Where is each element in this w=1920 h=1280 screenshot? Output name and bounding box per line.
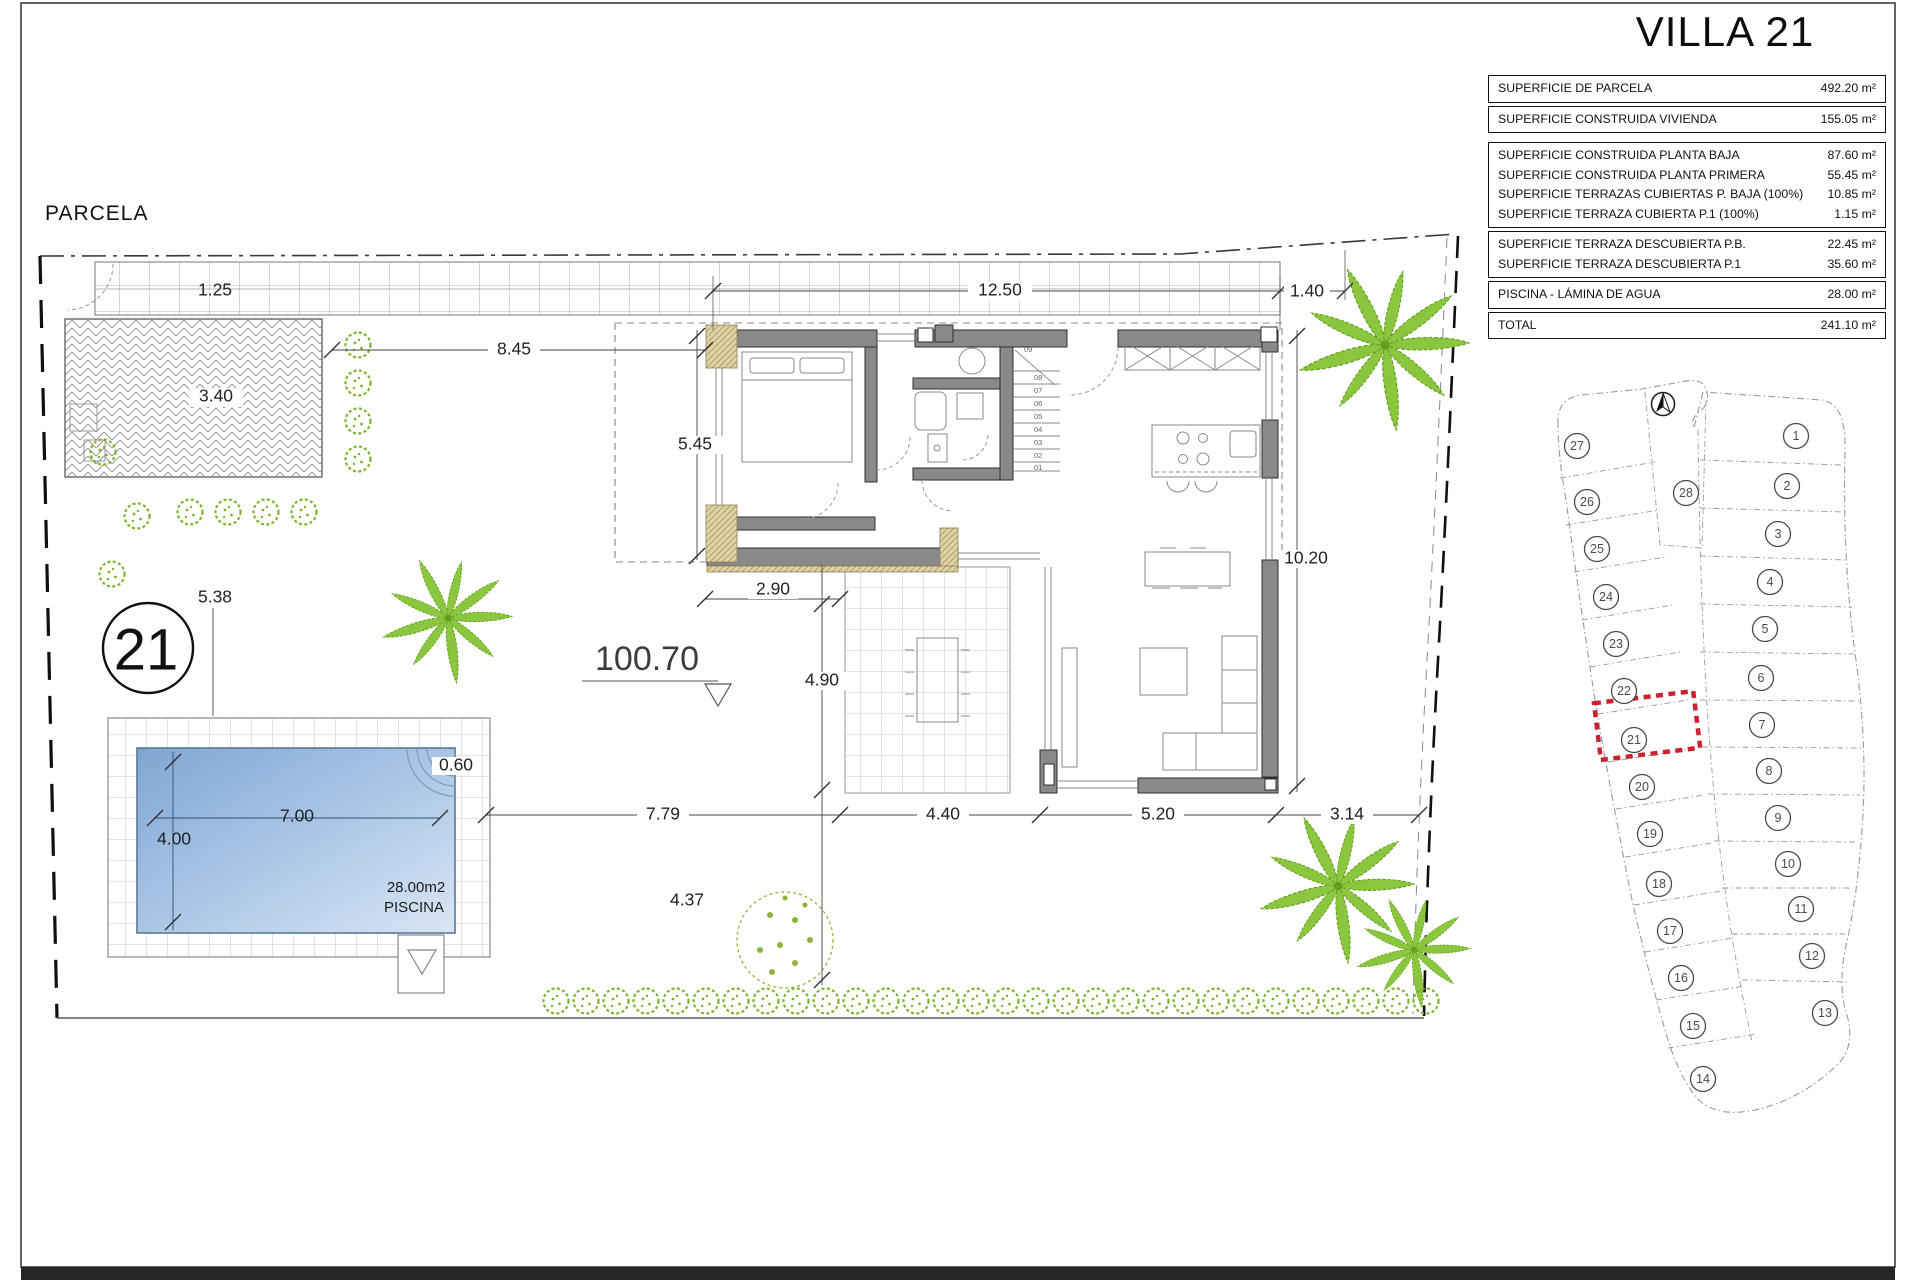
table-row: SUPERFICIE TERRAZAS CUBIERTAS P. BAJA (1…	[1489, 185, 1885, 205]
area-table-group: PISCINA - LÁMINA DE AGUA 28.00 m²	[1488, 281, 1886, 309]
area-table-group: TOTAL 241.10 m²	[1488, 312, 1886, 340]
svg-text:10: 10	[1781, 857, 1795, 871]
stair-label: 07	[1034, 386, 1042, 395]
site-location-map: 1 2 3 4 5 6 7 8 9 10 11 12 13 14 15 16 1…	[1558, 380, 1864, 1112]
area-table-group: SUPERFICIE CONSTRUIDA VIVIENDA 155.05 m²	[1488, 106, 1886, 134]
svg-text:3: 3	[1775, 527, 1782, 541]
dining-table	[1145, 548, 1230, 588]
svg-text:11: 11	[1795, 902, 1808, 916]
round-shrub	[737, 892, 833, 988]
dim-pool-length: 7.00	[280, 806, 314, 826]
stair-label: 06	[1034, 399, 1042, 408]
door-arcs	[802, 347, 1118, 519]
row-value: 87.60 m²	[1819, 148, 1876, 164]
svg-text:8: 8	[1766, 764, 1773, 778]
area-table-group: SUPERFICIE TERRAZA DESCUBIERTA P.B. 22.4…	[1488, 231, 1886, 278]
svg-text:24: 24	[1599, 590, 1613, 604]
svg-text:13: 13	[1818, 1006, 1832, 1020]
svg-text:19: 19	[1643, 827, 1657, 841]
row-label: PISCINA - LÁMINA DE AGUA	[1498, 287, 1661, 303]
svg-text:9: 9	[1775, 811, 1782, 825]
sofa	[1163, 636, 1257, 770]
row-label: SUPERFICIE DE PARCELA	[1498, 81, 1652, 97]
svg-text:25: 25	[1590, 542, 1604, 556]
svg-text:28: 28	[1679, 486, 1693, 500]
svg-text:26: 26	[1580, 495, 1594, 509]
svg-text:27: 27	[1570, 439, 1584, 453]
stair-label: 04	[1034, 425, 1042, 434]
pool-name-label: PISCINA	[384, 899, 444, 916]
stair-label: 03	[1034, 438, 1042, 447]
table-row: SUPERFICIE TERRAZA DESCUBIERTA P.1 35.60…	[1489, 255, 1885, 275]
row-label: TOTAL	[1498, 318, 1537, 334]
bottom-hedge	[544, 989, 1439, 1014]
svg-text:6: 6	[1758, 671, 1765, 685]
dim-window-left: 5.45	[678, 434, 712, 454]
drawing-sheet: 7.00 4.00 0.60 28.00m2 PISCINA 21	[0, 0, 1920, 1280]
staircase: 09 08 07 06 05 04 03 02 01	[1013, 345, 1060, 472]
dim-right-side: 10.20	[1284, 548, 1328, 568]
dim-terrace-below: 4.37	[670, 890, 704, 910]
dim-bottom-4: 3.14	[1330, 804, 1364, 824]
pool-area-label: 28.00m2	[387, 879, 445, 896]
round-shrub-leaves	[757, 896, 813, 976]
dim-walkway: 1.25	[198, 280, 232, 300]
table-row: SUPERFICIE TERRAZA CUBIERTA P.1 (100%) 1…	[1489, 205, 1885, 225]
parcela-label: PARCELA	[45, 202, 148, 226]
bathroom-fixtures	[915, 348, 985, 462]
dim-pool-width: 4.00	[157, 829, 191, 849]
table-row: SUPERFICIE DE PARCELA 492.20 m²	[1489, 76, 1885, 102]
dim-driveway: 3.40	[199, 386, 233, 406]
svg-text:21: 21	[114, 618, 179, 683]
svg-text:7: 7	[1759, 718, 1766, 732]
table-row: SUPERFICIE CONSTRUIDA PLANTA PRIMERA 55.…	[1489, 166, 1885, 186]
svg-text:18: 18	[1652, 877, 1666, 891]
stair-label: 02	[1034, 451, 1042, 460]
row-label: SUPERFICIE CONSTRUIDA PLANTA PRIMERA	[1498, 168, 1765, 184]
row-label: SUPERFICIE TERRAZAS CUBIERTAS P. BAJA (1…	[1498, 187, 1803, 203]
villa-building: 09 08 07 06 05 04 03 02 01	[615, 323, 1282, 793]
table-row: SUPERFICIE TERRAZA DESCUBIERTA P.B. 22.4…	[1489, 235, 1885, 255]
svg-text:17: 17	[1663, 924, 1677, 938]
row-label: SUPERFICIE TERRAZA CUBIERTA P.1 (100%)	[1498, 207, 1759, 223]
row-value: 155.05 m²	[1813, 112, 1876, 128]
dim-bottom-1: 7.79	[646, 804, 680, 824]
pool-area: 7.00 4.00 0.60 28.00m2 PISCINA	[108, 718, 490, 993]
row-value: 28.00 m²	[1819, 287, 1876, 303]
row-label: SUPERFICIE TERRAZA DESCUBIERTA P.B.	[1498, 237, 1746, 253]
walkway	[68, 262, 1280, 315]
coffee-table	[1140, 648, 1187, 695]
area-table: SUPERFICIE DE PARCELA 492.20 m² SUPERFIC…	[1488, 75, 1886, 339]
title-block-strip	[21, 1267, 1895, 1280]
table-row: PISCINA - LÁMINA DE AGUA 28.00 m²	[1489, 282, 1885, 308]
dim-pool-side: 5.38	[198, 587, 232, 607]
area-table-group: SUPERFICIE CONSTRUIDA PLANTA BAJA 87.60 …	[1488, 142, 1886, 228]
page-title: VILLA 21	[1560, 8, 1890, 56]
svg-text:16: 16	[1674, 971, 1688, 985]
dim-bottom-2: 4.40	[926, 804, 960, 824]
dim-bottom-3: 5.20	[1141, 804, 1175, 824]
svg-text:21: 21	[1627, 733, 1641, 747]
stair-label: 05	[1034, 412, 1042, 421]
dim-pool-deck: 0.60	[439, 755, 473, 775]
dim-terrace-height: 4.90	[805, 670, 839, 690]
dim-top-right: 1.40	[1290, 281, 1324, 301]
row-value: 492.20 m²	[1813, 81, 1876, 97]
table-row: TOTAL 241.10 m²	[1489, 313, 1885, 339]
svg-text:100.70: 100.70	[595, 640, 699, 678]
table-row: SUPERFICIE CONSTRUIDA PLANTA BAJA 87.60 …	[1489, 146, 1885, 166]
north-arrow-icon	[1652, 393, 1675, 416]
row-value: 22.45 m²	[1819, 237, 1876, 253]
row-value: 241.10 m²	[1813, 318, 1876, 334]
row-value: 55.45 m²	[1819, 168, 1876, 184]
svg-text:14: 14	[1696, 1072, 1710, 1086]
terrace	[845, 567, 1010, 793]
plot-number-badge: 21	[103, 603, 193, 693]
svg-text:1: 1	[1793, 429, 1800, 443]
kitchen	[1125, 342, 1260, 492]
row-value: 1.15 m²	[1826, 207, 1876, 223]
row-value: 35.60 m²	[1819, 257, 1876, 273]
stair-label: 08	[1034, 373, 1042, 382]
dim-top-main: 12.50	[978, 280, 1022, 300]
pillars	[706, 325, 958, 572]
svg-text:2: 2	[1784, 479, 1791, 493]
bed	[742, 352, 852, 462]
row-label: SUPERFICIE TERRAZA DESCUBIERTA P.1	[1498, 257, 1741, 273]
palm-tree	[382, 558, 512, 683]
stair-label: 01	[1034, 463, 1042, 472]
row-label: SUPERFICIE CONSTRUIDA PLANTA BAJA	[1498, 148, 1740, 164]
table-row: SUPERFICIE CONSTRUIDA VIVIENDA 155.05 m²	[1489, 107, 1885, 133]
dim-porch: 2.90	[756, 579, 790, 599]
row-label: SUPERFICIE CONSTRUIDA VIVIENDA	[1498, 112, 1717, 128]
bush-column	[346, 333, 371, 472]
row-value: 10.85 m²	[1819, 187, 1876, 203]
area-table-group: SUPERFICIE DE PARCELA 492.20 m²	[1488, 75, 1886, 103]
svg-text:4: 4	[1767, 575, 1774, 589]
dim-garden-left: 8.45	[497, 339, 531, 359]
svg-text:15: 15	[1686, 1019, 1700, 1033]
svg-text:5: 5	[1762, 622, 1769, 636]
svg-text:12: 12	[1805, 949, 1819, 963]
svg-text:20: 20	[1635, 780, 1649, 794]
svg-text:22: 22	[1617, 684, 1631, 698]
svg-text:23: 23	[1609, 637, 1623, 651]
level-marker: 100.70	[582, 640, 731, 706]
stair-label: 09	[1024, 345, 1032, 354]
tv-bench	[1062, 648, 1077, 767]
